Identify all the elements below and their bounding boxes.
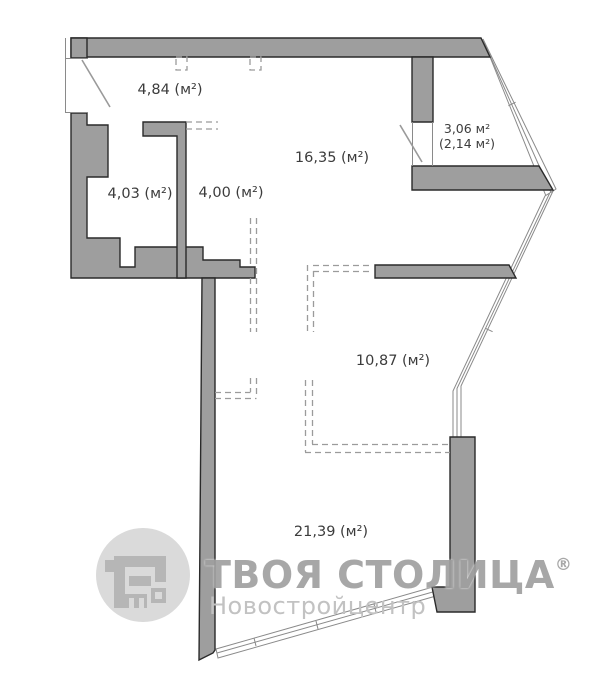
room-area-label-hallway: 4,84 (м²) bbox=[138, 82, 203, 98]
floor-plan-image: 4,84 (м²) 16,35 (м²) 4,03 (м²) 4,00 (м²)… bbox=[0, 0, 615, 694]
interior-wall-bar bbox=[375, 265, 516, 278]
vent-mark bbox=[250, 57, 261, 70]
vent-mark bbox=[176, 57, 187, 70]
room-area-label-planned-room: 10,87 (м²) bbox=[356, 353, 430, 369]
room-area-label-living-large: 21,39 (м²) bbox=[294, 524, 368, 540]
entrance-door-leaf bbox=[82, 60, 110, 107]
window-glazing-group bbox=[216, 39, 556, 658]
right-window-glazing bbox=[453, 191, 553, 437]
exterior-wall-lower-left bbox=[199, 278, 215, 660]
room-area-label-balcony-coef: (2,14 м²) bbox=[439, 136, 495, 151]
balcony-partition-wall bbox=[412, 57, 433, 122]
room-area-label-balcony-full: 3,06 м² bbox=[444, 121, 490, 136]
room-labels-group: 4,84 (м²) 16,35 (м²) 4,03 (м²) 4,00 (м²)… bbox=[108, 82, 495, 540]
room-area-label-corridor: 4,00 (м²) bbox=[199, 185, 264, 201]
room-area-label-bathroom: 4,03 (м²) bbox=[108, 186, 173, 202]
exterior-wall-right-column bbox=[432, 437, 475, 612]
exterior-wall-left-stub bbox=[71, 38, 87, 58]
balcony-door-leaf bbox=[400, 125, 422, 162]
room-area-label-living-main: 16,35 (м²) bbox=[295, 150, 369, 166]
floor-plan-drawing: 4,84 (м²) 16,35 (м²) 4,03 (м²) 4,00 (м²)… bbox=[0, 0, 615, 694]
exterior-wall-top bbox=[71, 38, 490, 57]
dashed-partitions-group bbox=[176, 57, 450, 453]
balcony-bottom-wall bbox=[412, 166, 553, 190]
